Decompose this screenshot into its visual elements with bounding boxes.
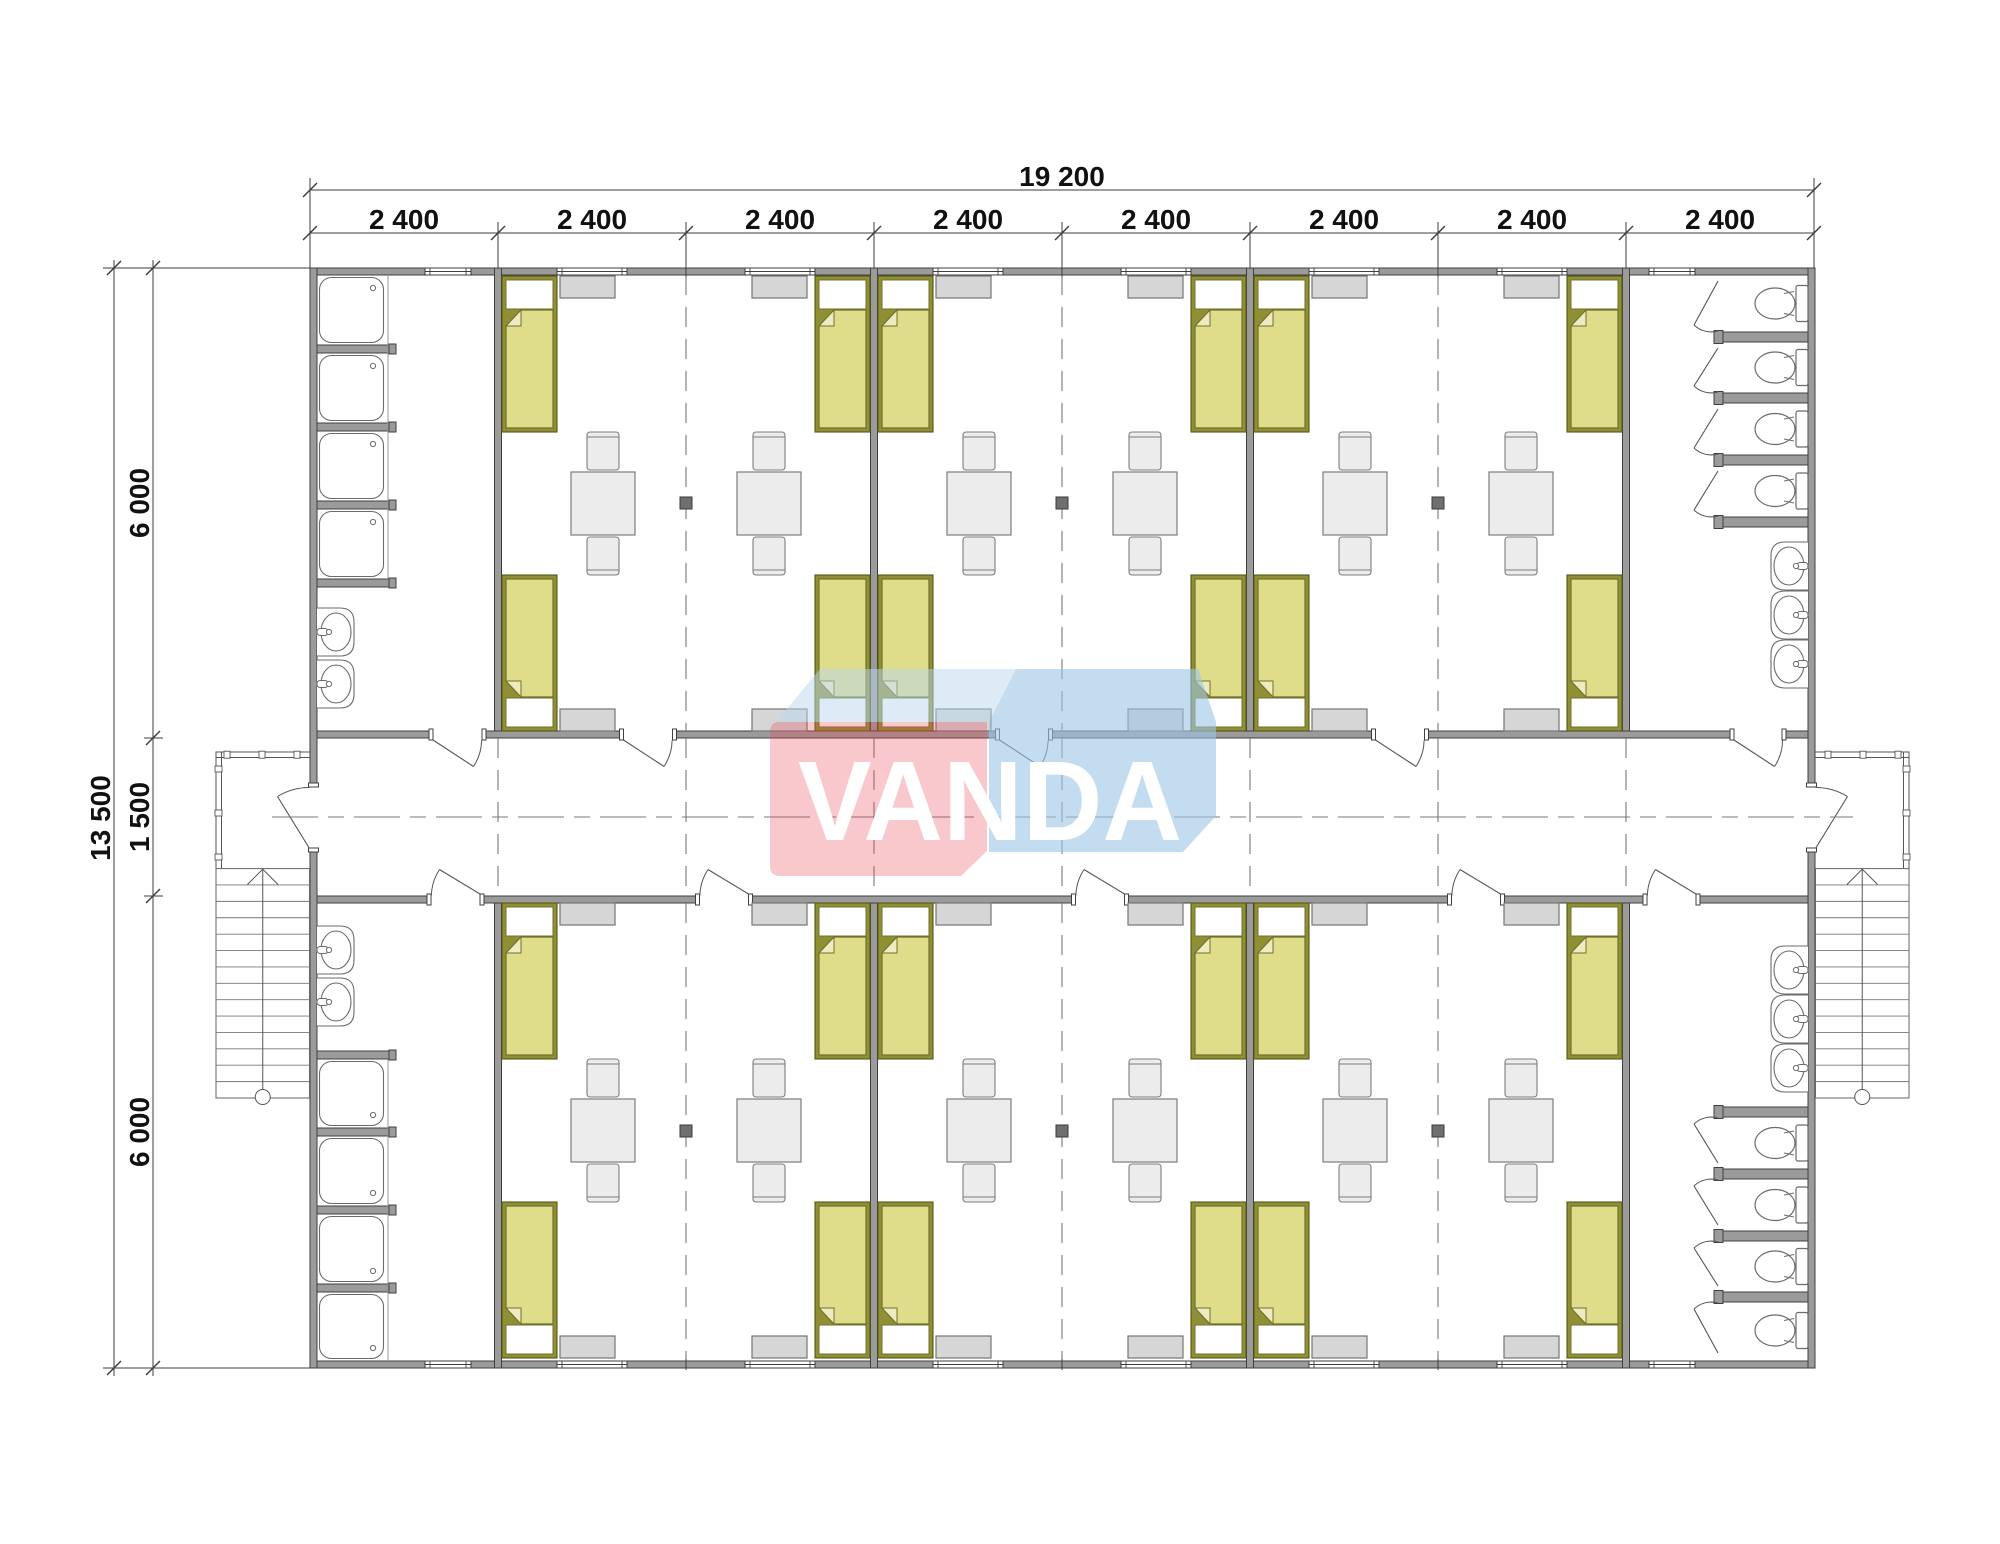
svg-text:13 500: 13 500 [85,775,116,861]
svg-text:2 400: 2 400 [1497,204,1567,235]
svg-text:6 000: 6 000 [124,468,155,538]
svg-text:2 400: 2 400 [369,204,439,235]
svg-text:19 200: 19 200 [1019,161,1105,192]
svg-text:6 000: 6 000 [124,1097,155,1167]
svg-text:2 400: 2 400 [557,204,627,235]
svg-text:2 400: 2 400 [1121,204,1191,235]
svg-text:2 400: 2 400 [933,204,1003,235]
svg-text:2 400: 2 400 [1685,204,1755,235]
svg-text:2 400: 2 400 [745,204,815,235]
svg-text:1 500: 1 500 [124,782,155,852]
svg-text:2 400: 2 400 [1309,204,1379,235]
svg-text:VANDA: VANDA [798,738,1182,864]
